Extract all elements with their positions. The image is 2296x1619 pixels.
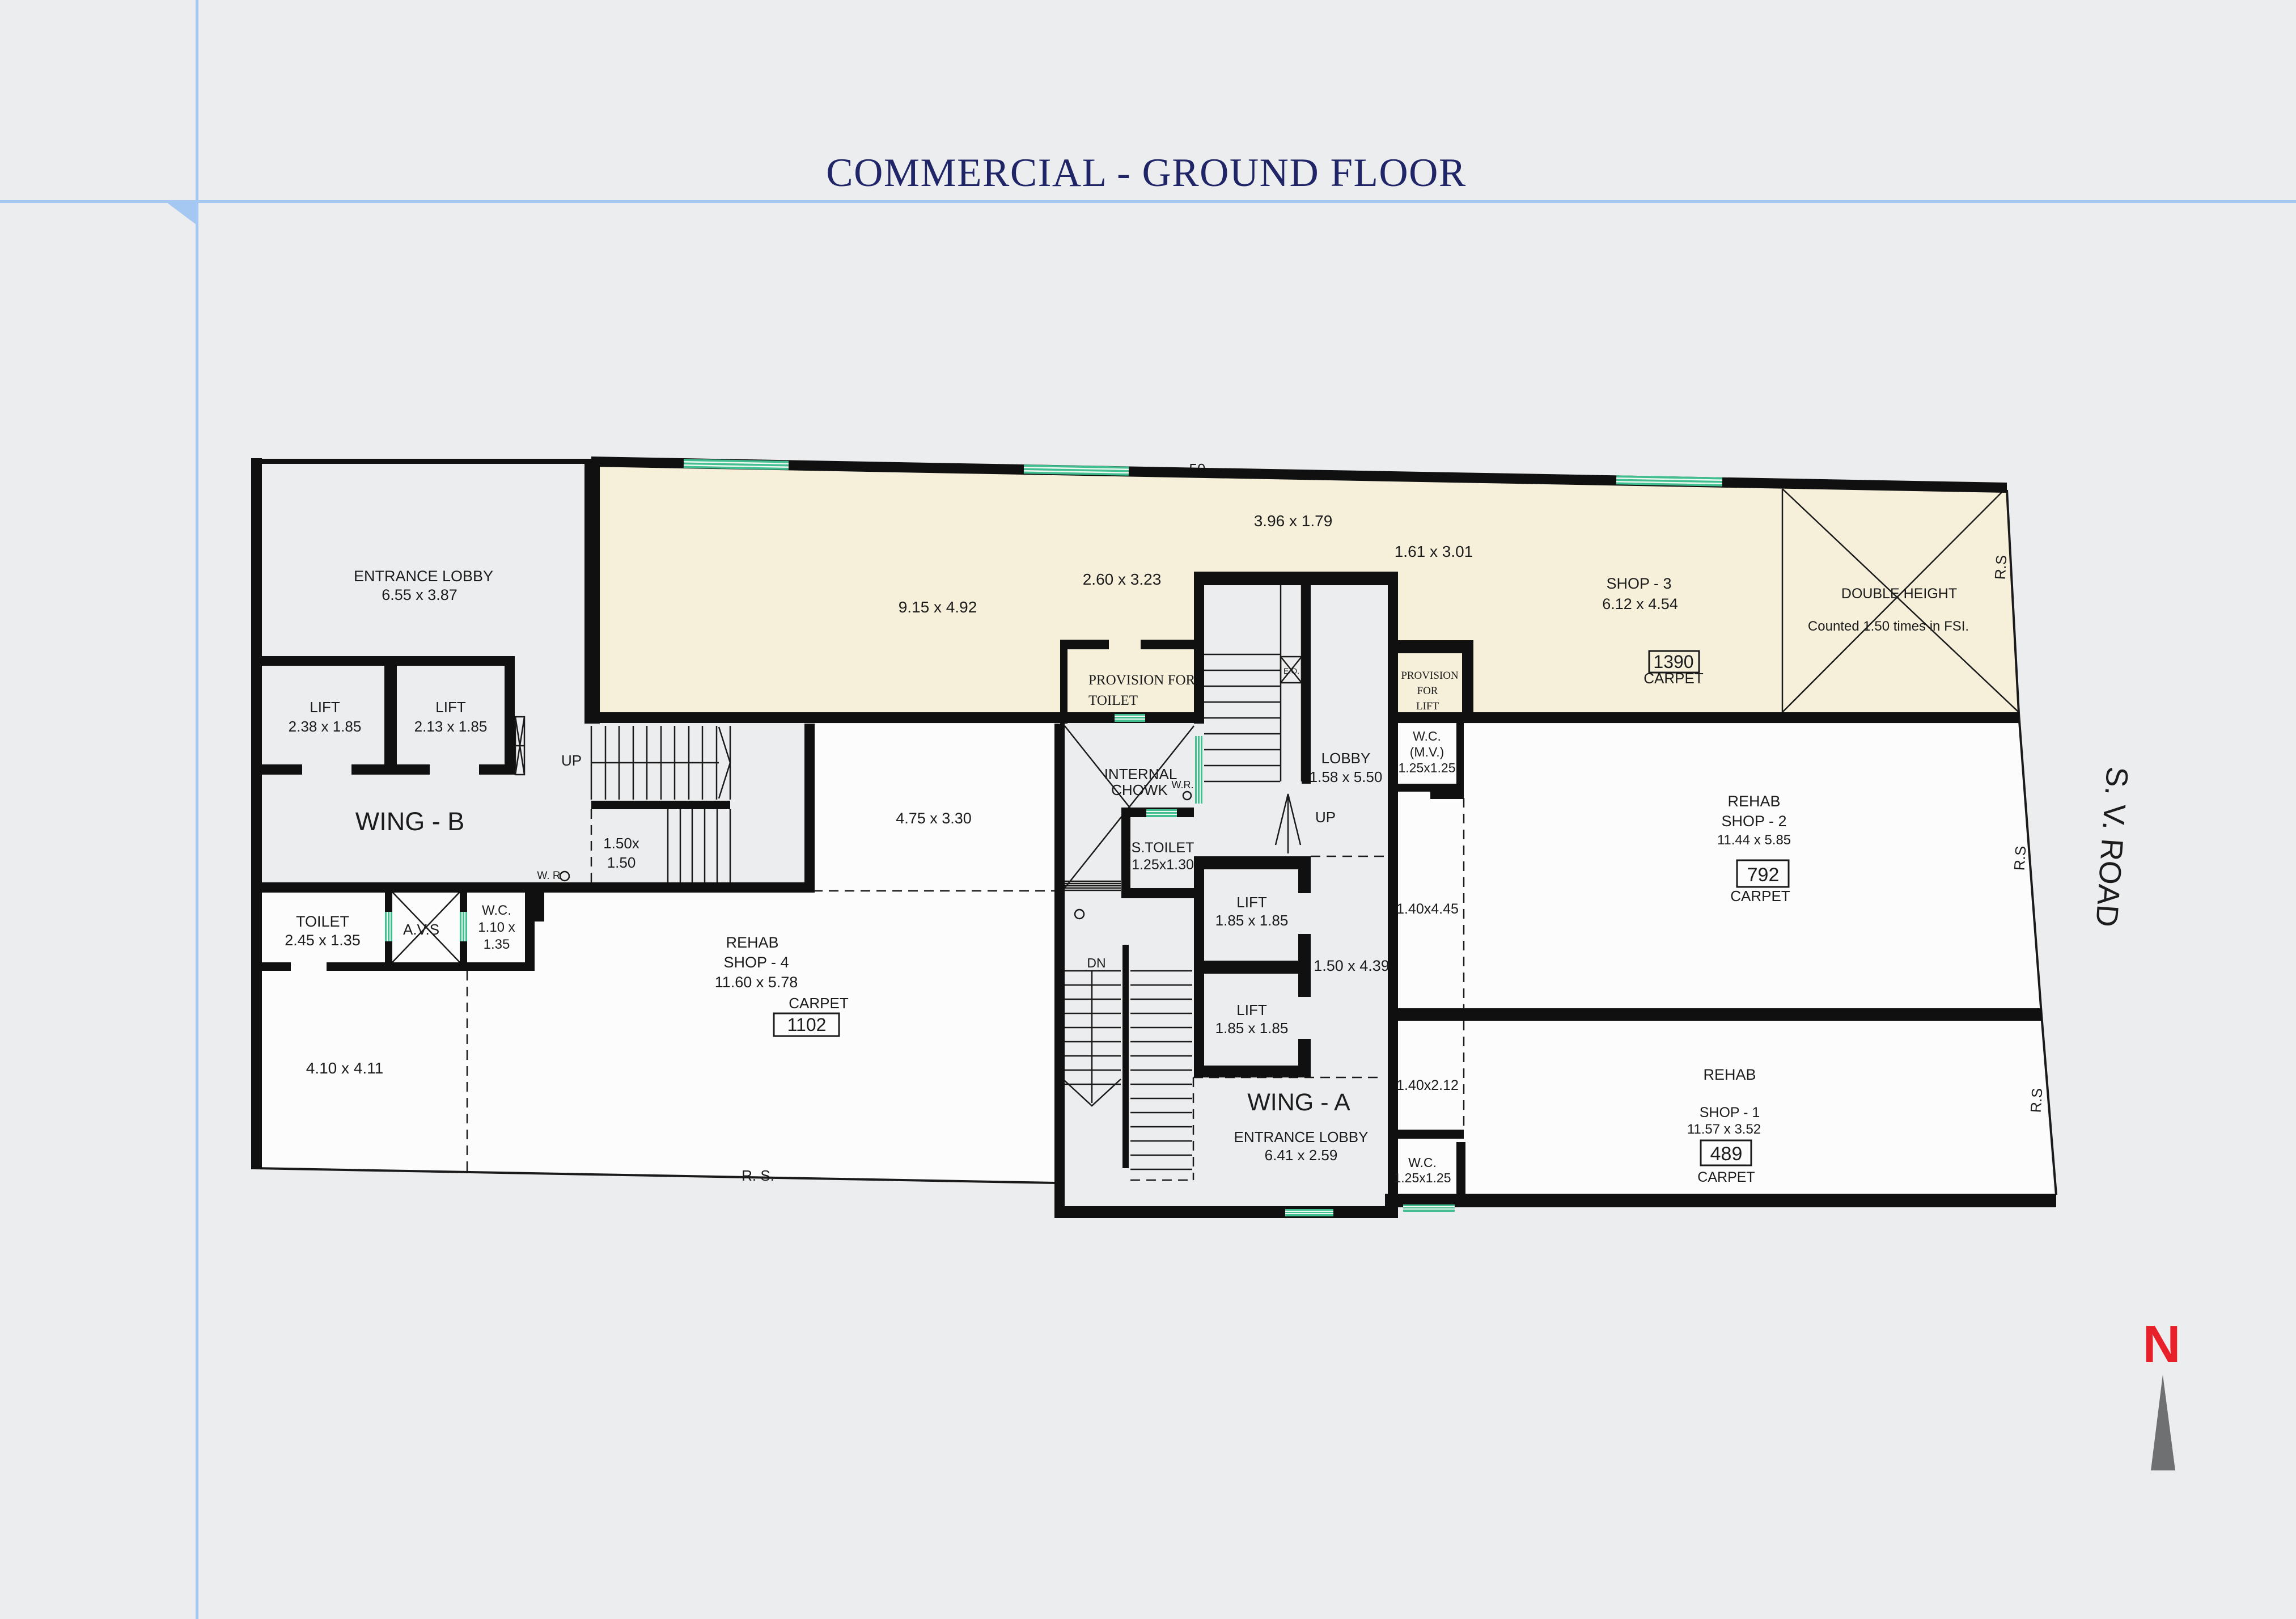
svg-text:TOILET: TOILET [1088,693,1138,708]
svg-text:1.25x1.25: 1.25x1.25 [1398,760,1455,775]
svg-text:REHAB: REHAB [1703,1066,1756,1083]
svg-text:DN: DN [1087,956,1105,970]
svg-text:W. R: W. R [537,870,560,882]
svg-text:1.25x1.30: 1.25x1.30 [1132,857,1194,873]
svg-text:DOUBLE HEIGHT: DOUBLE HEIGHT [1841,586,1957,602]
svg-text:1.25x1.25: 1.25x1.25 [1393,1170,1451,1185]
svg-text:1.85 x 1.85: 1.85 x 1.85 [1215,912,1289,929]
svg-text:INTERNAL: INTERNAL [1104,766,1177,783]
svg-text:R.S: R.S [1992,555,2010,580]
svg-text:S.TOILET: S.TOILET [1132,840,1194,856]
svg-text:1.85 x 1.85: 1.85 x 1.85 [1215,1020,1289,1037]
svg-text:TOILET: TOILET [296,913,349,930]
svg-text:1.50x: 1.50x [603,835,639,852]
svg-text:PROVISION: PROVISION [1401,670,1459,682]
svg-text:LIFT: LIFT [310,699,340,716]
svg-text:SHOP - 4: SHOP - 4 [723,954,789,971]
svg-text:1.40x2.12: 1.40x2.12 [1396,1077,1459,1093]
svg-text:PROVISION FOR: PROVISION FOR [1088,673,1196,688]
svg-text:R. S.: R. S. [742,1167,774,1184]
svg-text:R.S: R.S [2011,846,2030,871]
svg-text:REHAB: REHAB [726,934,778,951]
svg-text:6.12 x 4.54: 6.12 x 4.54 [1602,595,1678,612]
svg-text:792: 792 [1747,864,1780,886]
svg-text:LIFT: LIFT [1416,700,1439,712]
svg-text:COMMERCIAL - GROUND FLOOR: COMMERCIAL - GROUND FLOOR [826,151,1467,195]
svg-text:1102: 1102 [787,1014,827,1035]
svg-text:ENTRANCE LOBBY: ENTRANCE LOBBY [354,568,493,585]
svg-text:W.C.: W.C. [482,903,511,918]
svg-text:CARPET: CARPET [1730,887,1790,904]
svg-text:W.C.: W.C. [1408,1155,1437,1170]
svg-text:2.13 x 1.85: 2.13 x 1.85 [414,718,488,735]
svg-text:1.50 x 4.39: 1.50 x 4.39 [1314,957,1390,974]
svg-text:CARPET: CARPET [789,995,849,1012]
svg-text:CHOWK: CHOWK [1111,781,1168,798]
svg-text:N: N [2142,1314,2180,1373]
svg-text:Counted 1.50 times in FSI.: Counted 1.50 times in FSI. [1808,619,1969,634]
svg-text:4.10 x 4.11: 4.10 x 4.11 [306,1059,383,1077]
svg-text:6.55 x 3.87: 6.55 x 3.87 [382,586,457,603]
svg-text:WING - B: WING - B [355,807,464,836]
svg-text:CARPET: CARPET [1643,670,1704,687]
svg-text:1.10 x: 1.10 x [478,920,515,935]
svg-text:SHOP - 2: SHOP - 2 [1721,813,1786,830]
svg-text:LIFT: LIFT [435,699,466,716]
svg-text:1.50: 1.50 [607,854,636,871]
svg-text:R.S: R.S [2027,1088,2046,1113]
svg-text:LIFT: LIFT [1236,1001,1267,1018]
svg-text:E.O.: E.O. [1283,666,1299,675]
svg-text:UP: UP [1315,809,1336,826]
svg-text:LIFT: LIFT [1236,894,1267,911]
svg-text:1.35: 1.35 [484,937,510,952]
svg-text:11.44 x 5.85: 11.44 x 5.85 [1717,832,1791,848]
svg-text:2.38 x 1.85: 2.38 x 1.85 [289,718,362,735]
svg-text:1390: 1390 [1653,652,1693,672]
svg-text:WING - A: WING - A [1247,1089,1350,1116]
svg-text:(M.V.): (M.V.) [1410,745,1444,759]
svg-text:SHOP - 1: SHOP - 1 [1700,1105,1760,1121]
svg-text:1.58 x 5.50: 1.58 x 5.50 [1310,768,1383,785]
svg-text:11.57 x 3.52: 11.57 x 3.52 [1687,1122,1761,1137]
svg-text:REHAB: REHAB [1727,793,1780,810]
svg-text:3.96 x 1.79: 3.96 x 1.79 [1254,512,1333,530]
svg-text:4.75 x 3.30: 4.75 x 3.30 [896,810,972,827]
svg-text:ENTRANCE LOBBY: ENTRANCE LOBBY [1234,1128,1369,1145]
svg-text:1.40x4.45: 1.40x4.45 [1396,901,1459,917]
svg-text:W.R.: W.R. [1172,779,1194,791]
svg-text:6.41 x 2.59: 6.41 x 2.59 [1265,1147,1338,1164]
svg-text:1.61 x 3.01: 1.61 x 3.01 [1395,543,1473,560]
svg-text:FOR: FOR [1417,685,1438,697]
svg-text:LOBBY: LOBBY [1321,750,1371,767]
svg-text:11.60 x 5.78: 11.60 x 5.78 [715,974,798,991]
svg-text:W.C.: W.C. [1413,729,1441,743]
svg-text:9.15 x 4.92: 9.15 x 4.92 [899,598,977,616]
svg-text:SHOP - 3: SHOP - 3 [1606,575,1671,592]
svg-text:489: 489 [1710,1143,1743,1165]
svg-text:CARPET: CARPET [1697,1169,1755,1185]
svg-text:A.V.S: A.V.S [403,921,439,938]
svg-text:2.60 x 3.23: 2.60 x 3.23 [1083,570,1162,588]
svg-text:UP: UP [561,752,582,769]
svg-text:2.45 x 1.35: 2.45 x 1.35 [285,932,361,949]
